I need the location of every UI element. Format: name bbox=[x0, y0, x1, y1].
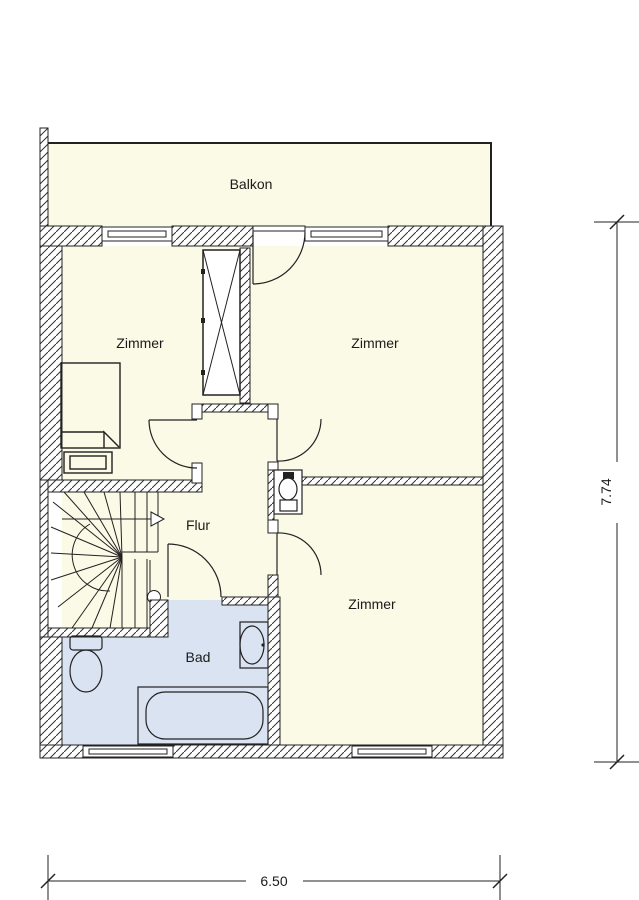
wall-bath-right bbox=[268, 597, 280, 745]
label-balcony: Balkon bbox=[230, 176, 273, 192]
wall-hall-bath bbox=[222, 597, 268, 605]
wall-right bbox=[483, 226, 503, 758]
wall-top-2 bbox=[172, 226, 253, 246]
wall-top-3 bbox=[388, 226, 483, 246]
label-room-upper-right: Zimmer bbox=[351, 335, 399, 351]
wall-shaft-right bbox=[240, 248, 250, 403]
label-hallway: Flur bbox=[186, 517, 210, 533]
wall-left-upper bbox=[40, 226, 62, 480]
wall-top-1 bbox=[40, 226, 102, 246]
floor-plan-drawing: Balkon Zimmer Zimmer Flur Bad Zimmer 6.5… bbox=[0, 0, 639, 900]
wall-stairs-top bbox=[48, 480, 202, 492]
toilet-icon bbox=[70, 636, 102, 692]
wc-icon bbox=[274, 470, 302, 514]
balcony-left-wall bbox=[40, 128, 48, 226]
window-icon-north-2 bbox=[305, 227, 388, 241]
window-icon-south-room bbox=[352, 746, 432, 757]
wall-left-lower bbox=[40, 637, 62, 758]
wall-rooms-divider bbox=[302, 477, 483, 485]
wall-landing-top bbox=[202, 404, 268, 412]
floor-plan-page: Balkon Zimmer Zimmer Flur Bad Zimmer 6.5… bbox=[0, 0, 639, 900]
label-room-lower-right: Zimmer bbox=[348, 596, 396, 612]
wall-hall-right-mid bbox=[268, 470, 274, 520]
chimney-icon bbox=[201, 250, 240, 395]
window-icon-south-bath bbox=[83, 746, 173, 757]
label-bathroom: Bad bbox=[186, 649, 211, 665]
wall-hall-right-low bbox=[268, 575, 278, 597]
window-icon-north-1 bbox=[102, 227, 172, 241]
label-room-upper-left: Zimmer bbox=[116, 335, 164, 351]
dimension-width-value: 6.50 bbox=[260, 873, 287, 889]
balcony-door-sill bbox=[253, 226, 305, 231]
wall-stairs-corner bbox=[150, 600, 168, 637]
dimension-height-value: 7.74 bbox=[598, 478, 614, 505]
wall-left-stairs bbox=[40, 480, 48, 637]
